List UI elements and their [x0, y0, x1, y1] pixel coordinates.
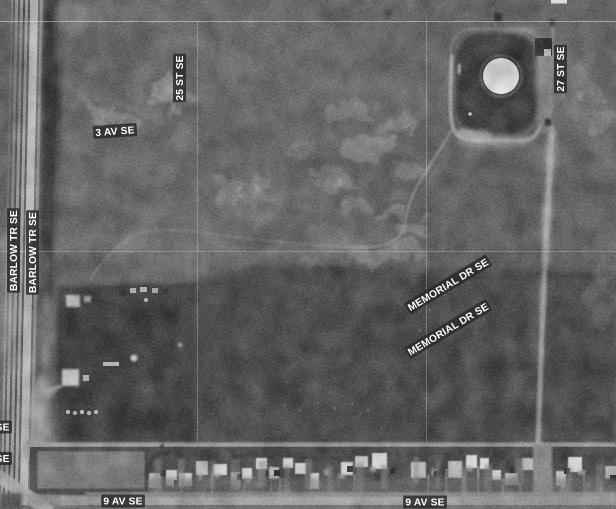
svg-text:BARLOW TR SE: BARLOW TR SE [28, 212, 39, 293]
svg-text:25 ST SE: 25 ST SE [175, 55, 186, 100]
svg-text:9 AV SE: 9 AV SE [0, 454, 10, 465]
svg-text:BARLOW TR SE: BARLOW TR SE [9, 210, 20, 291]
svg-text:9 AV SE: 9 AV SE [103, 497, 142, 508]
svg-text:8 AV SE: 8 AV SE [0, 423, 10, 434]
svg-text:27 ST SE: 27 ST SE [556, 46, 567, 91]
svg-text:9 AV SE: 9 AV SE [405, 498, 444, 509]
